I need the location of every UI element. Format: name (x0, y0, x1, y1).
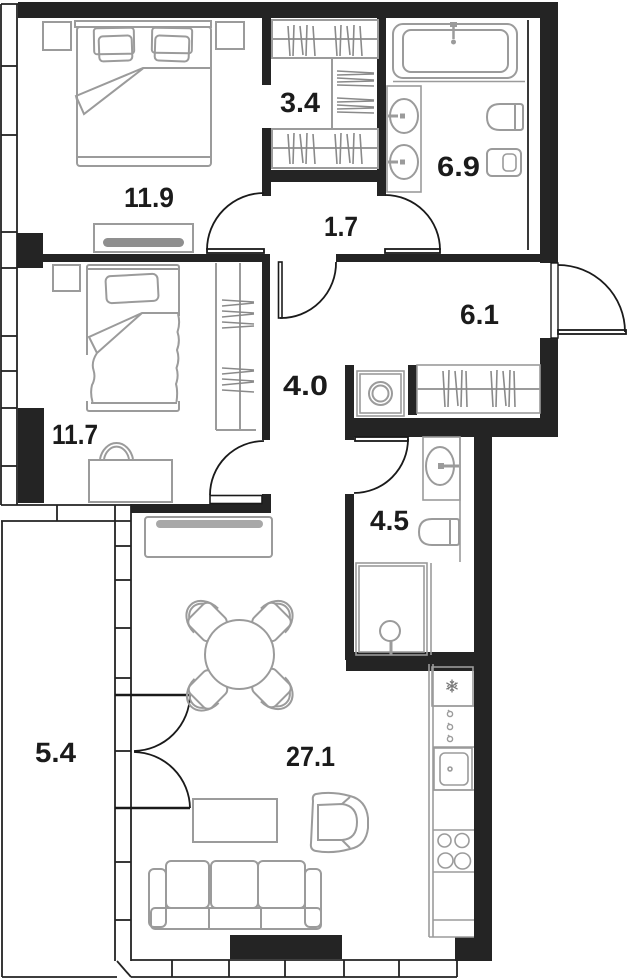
svg-text:27.1: 27.1 (286, 741, 335, 772)
svg-text:4.5: 4.5 (370, 505, 409, 536)
svg-text:4.0: 4.0 (283, 370, 328, 401)
svg-text:1.7: 1.7 (324, 211, 358, 242)
svg-text:11.7: 11.7 (52, 419, 98, 450)
svg-text:3.4: 3.4 (280, 87, 320, 118)
svg-text:6.9: 6.9 (437, 151, 480, 182)
svg-text:6.1: 6.1 (460, 299, 499, 330)
svg-text:11.9: 11.9 (124, 182, 174, 213)
svg-text:5.4: 5.4 (35, 737, 76, 768)
